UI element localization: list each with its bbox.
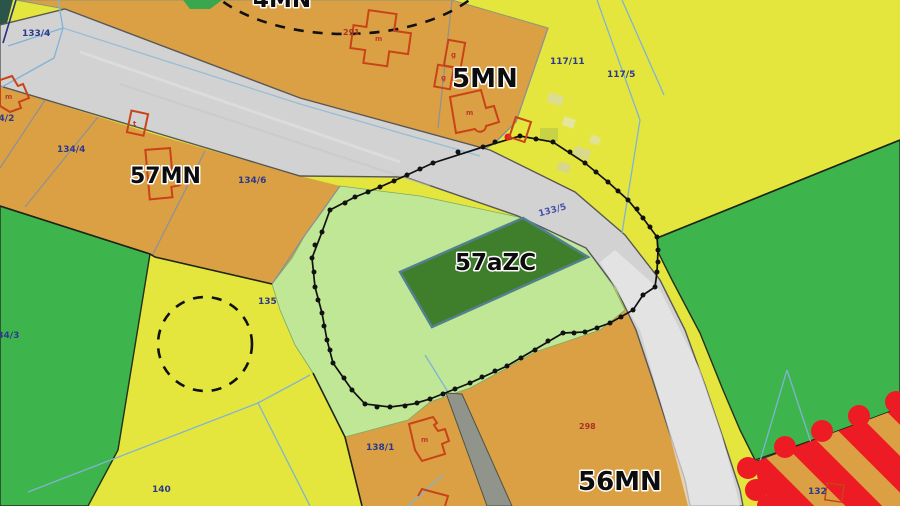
parcel-label-117-5: 117/5 xyxy=(607,70,635,80)
parcel-label-138-1: 138/1 xyxy=(366,443,394,453)
parcel-label-134-6: 134/6 xyxy=(238,176,266,186)
parcel-label-134-2: 134/2 xyxy=(0,114,14,124)
building-letter: m xyxy=(421,436,428,444)
parcel-label-117-11: 117/11 xyxy=(550,57,585,67)
zone-label-57mn: 57MN xyxy=(130,164,201,189)
zone-label-56mn: 56MN xyxy=(578,467,662,497)
red-label-291: 291 xyxy=(343,28,360,37)
parcel-label-140: 140 xyxy=(152,485,171,495)
parcel-label-135: 135 xyxy=(258,297,277,307)
zone-label-5mn: 5MN xyxy=(452,64,518,94)
building-letter: g xyxy=(451,51,456,59)
zone-label-57azc: 57aZC xyxy=(455,250,536,276)
building-letter: m xyxy=(375,35,382,43)
parcel-label-133-4: 133/4 xyxy=(22,29,50,39)
parcel-label-132: 132 xyxy=(808,487,827,497)
map-canvas[interactable]: m g g m m t m 133/4 134/2 134/4 134/6 13… xyxy=(0,0,900,506)
parcel-label-134-3: 134/3 xyxy=(0,331,19,341)
red-label-298: 298 xyxy=(579,422,596,431)
zone-label-4mn: 4MN xyxy=(253,0,311,13)
building-letter: g xyxy=(441,74,446,82)
parcel-label-134-4: 134/4 xyxy=(57,145,85,155)
building-letter: m xyxy=(5,93,12,101)
building-letter: m xyxy=(466,109,473,117)
